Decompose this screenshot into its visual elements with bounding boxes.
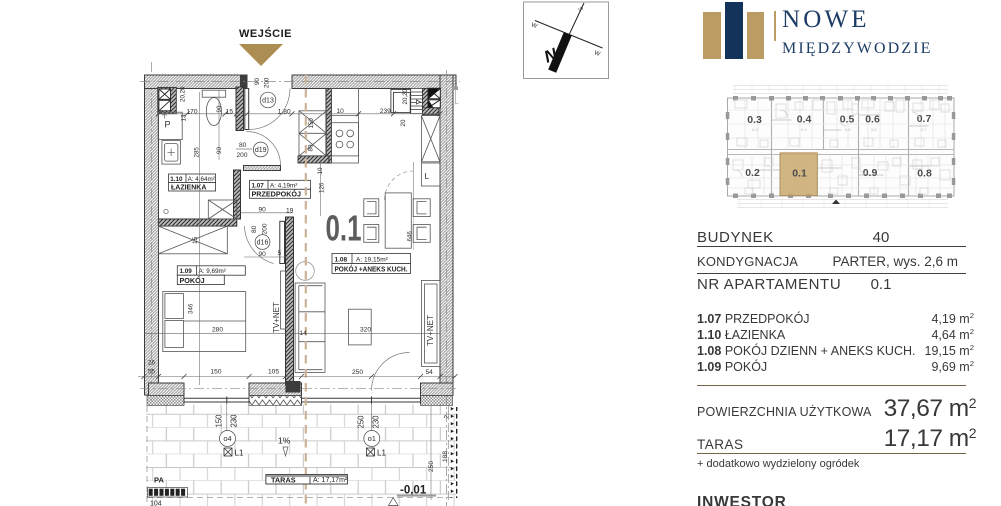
svg-text:ŁAZIENKA: ŁAZIENKA [171, 185, 206, 192]
svg-text:250: 250 [352, 369, 363, 376]
svg-text:TV+NET: TV+NET [426, 315, 435, 346]
svg-text:188: 188 [442, 451, 449, 462]
svg-text:d16: d16 [257, 240, 269, 247]
svg-text:1.07: 1.07 [252, 183, 265, 190]
svg-text:1.10: 1.10 [170, 176, 183, 183]
svg-text:90: 90 [259, 251, 267, 258]
svg-text:230: 230 [230, 414, 239, 428]
svg-text:15: 15 [226, 109, 234, 116]
svg-text:A: 4,19m²: A: 4,19m² [270, 183, 297, 190]
svg-text:0.4: 0.4 [801, 127, 807, 132]
svg-text:o1: o1 [368, 434, 376, 443]
svg-text:646: 646 [407, 231, 414, 242]
svg-text:0.1: 0.1 [792, 168, 807, 180]
svg-text:150: 150 [215, 414, 224, 428]
svg-text:200: 200 [264, 77, 271, 88]
svg-text:POKÓJ: POKÓJ [180, 276, 205, 285]
svg-text:A: 19,15m²: A: 19,15m² [356, 257, 389, 264]
svg-text:346: 346 [188, 303, 195, 314]
svg-text:80: 80 [239, 142, 247, 149]
svg-text:20,20: 20,20 [180, 86, 187, 102]
svg-text:L1: L1 [235, 449, 244, 458]
svg-text:200: 200 [262, 223, 269, 234]
svg-text:54: 54 [426, 369, 434, 376]
svg-text:14: 14 [300, 330, 308, 337]
svg-text:80: 80 [251, 225, 258, 233]
svg-text:o4: o4 [223, 434, 231, 443]
svg-text:1.08: 1.08 [335, 257, 348, 264]
svg-text:A: 9,69m²: A: 9,69m² [199, 268, 226, 275]
svg-text:19: 19 [286, 208, 294, 215]
svg-text:0.3: 0.3 [747, 114, 762, 126]
svg-text:0.2: 0.2 [745, 167, 760, 179]
svg-text:250: 250 [357, 415, 366, 429]
svg-text:80: 80 [308, 144, 315, 151]
svg-text:15: 15 [192, 236, 199, 244]
svg-text:A: 4,64m²: A: 4,64m² [188, 176, 215, 183]
svg-text:200: 200 [237, 152, 248, 159]
svg-text:1.09: 1.09 [180, 268, 193, 275]
svg-text:0.6: 0.6 [871, 127, 877, 132]
svg-text:26: 26 [148, 360, 155, 367]
svg-text:0.4: 0.4 [797, 114, 812, 126]
svg-text:1%: 1% [278, 436, 291, 446]
svg-text:TV+NET: TV+NET [272, 302, 281, 333]
svg-text:0.7: 0.7 [921, 127, 927, 132]
svg-text:2.: 2. [444, 413, 451, 418]
svg-text:90: 90 [216, 105, 223, 112]
svg-text:PA: PA [154, 476, 164, 485]
svg-text:L: L [425, 171, 430, 181]
svg-text:POKÓJ +ANEKS KUCH.: POKÓJ +ANEKS KUCH. [335, 265, 408, 274]
svg-text:55: 55 [148, 369, 155, 376]
svg-text:320: 320 [360, 327, 371, 334]
svg-text:90: 90 [254, 78, 261, 85]
svg-text:239: 239 [380, 108, 391, 115]
svg-text:250: 250 [428, 461, 435, 472]
svg-text:PRZEDPOKÓJ: PRZEDPOKÓJ [252, 190, 302, 199]
svg-text:104: 104 [150, 501, 162, 506]
svg-text:5: 5 [278, 250, 282, 257]
svg-text:13: 13 [181, 114, 188, 121]
svg-text:0.3: 0.3 [752, 127, 758, 132]
svg-text:0.5: 0.5 [845, 127, 851, 132]
svg-text:0.1: 0.1 [326, 208, 362, 248]
svg-text:TARAS: TARAS [271, 475, 296, 484]
svg-text:A: 17,17m²: A: 17,17m² [313, 477, 348, 484]
svg-text:20: 20 [400, 119, 407, 126]
svg-text:280: 280 [212, 327, 223, 334]
svg-text:10: 10 [337, 108, 345, 115]
svg-text:0.6: 0.6 [865, 114, 880, 126]
svg-text:d19: d19 [255, 147, 267, 154]
svg-text:0.9: 0.9 [863, 167, 878, 179]
svg-text:90: 90 [259, 207, 267, 214]
svg-text:105: 105 [268, 369, 279, 376]
svg-text:1,80: 1,80 [278, 109, 291, 116]
svg-text:0.5: 0.5 [840, 114, 855, 126]
svg-text:d13: d13 [262, 98, 274, 105]
svg-text:230: 230 [372, 415, 381, 429]
svg-text:150: 150 [211, 369, 222, 376]
svg-text:L1: L1 [377, 449, 386, 458]
svg-text:150: 150 [308, 118, 315, 129]
svg-text:P: P [165, 120, 171, 130]
svg-text:20,20: 20,20 [402, 88, 409, 104]
svg-text:10: 10 [317, 167, 324, 174]
svg-text:285: 285 [193, 147, 200, 158]
svg-text:170: 170 [187, 109, 198, 116]
svg-text:126: 126 [319, 182, 326, 193]
svg-text:90: 90 [216, 147, 223, 154]
